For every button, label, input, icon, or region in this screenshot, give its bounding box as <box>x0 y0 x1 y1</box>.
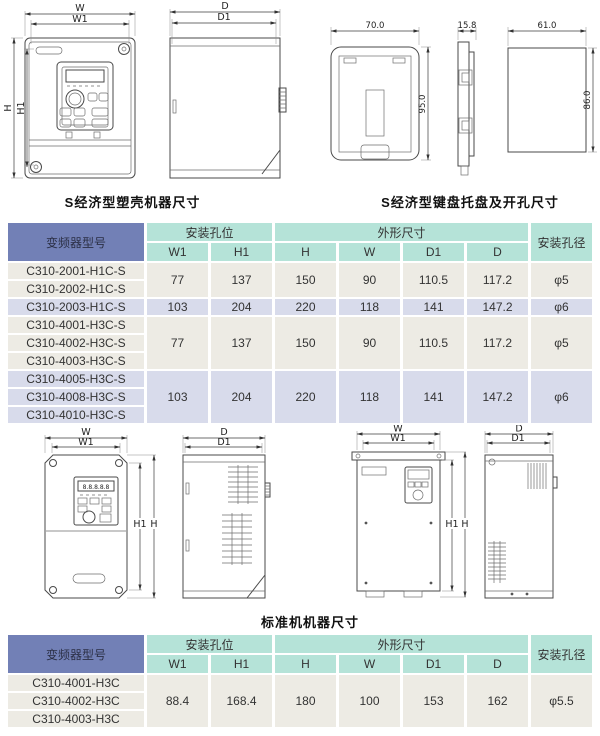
value-cell: 137 <box>211 317 272 369</box>
model-cell: C310-4008-H3C-S <box>8 389 144 405</box>
dim-label-h1: H1 <box>133 519 146 530</box>
dim-label-w1: W1 <box>390 433 405 444</box>
value-cell: 88.4 <box>147 675 208 727</box>
keypad-display: 8.8.8.8.8 <box>83 484 110 491</box>
dim-label-d1: D1 <box>511 433 524 444</box>
header-d: D <box>467 655 528 673</box>
header-h1: H1 <box>211 655 272 673</box>
value-cell: 147.2 <box>467 299 528 315</box>
front-view <box>25 38 135 178</box>
model-cell: C310-4003-H3C <box>8 711 144 727</box>
caption-s-economy-machine: S经济型塑壳机器尺寸 <box>20 192 245 211</box>
dimensions-table-s-economy: 变频器型号 安装孔位 外形尺寸 安装孔径 W1 H1 H W D1 D C310… <box>5 221 595 425</box>
model-cell: C310-4005-H3C-S <box>8 371 144 387</box>
caption-standard-machine: 标准机机器尺寸 <box>10 612 600 631</box>
std-side-view-large <box>485 455 557 598</box>
dim-label-w1: W1 <box>72 14 87 25</box>
value-cell: 180 <box>275 675 336 727</box>
model-cell: C310-2003-H1C-S <box>8 299 144 315</box>
value-cell: 204 <box>211 371 272 423</box>
value-cell: 77 <box>147 263 208 297</box>
dimension-lines-left: W W1 H1 H D D1 <box>45 427 265 598</box>
dim-label-d: D <box>221 1 228 12</box>
header-w1: W1 <box>147 243 208 261</box>
dim-hole-width: 61.0 <box>538 21 557 31</box>
header-h1: H1 <box>211 243 272 261</box>
header-model: 变频器型号 <box>8 635 144 673</box>
header-h: H <box>275 243 336 261</box>
value-cell: 141 <box>403 299 464 315</box>
cutout-view <box>508 48 586 152</box>
value-cell: φ6 <box>531 371 592 423</box>
header-w1: W1 <box>147 655 208 673</box>
model-cell: C310-4003-H3C-S <box>8 353 144 369</box>
header-hole-diameter: 安装孔径 <box>531 223 592 261</box>
dim-tray-depth: 15.8 <box>458 21 477 31</box>
value-cell: φ6 <box>531 299 592 315</box>
value-cell: 103 <box>147 371 208 423</box>
header-d1: D1 <box>403 243 464 261</box>
header-h: H <box>275 655 336 673</box>
dim-label-h: H <box>461 519 468 530</box>
datasheet-page: W W1 H H1 D D1 <box>0 0 600 736</box>
value-cell: 117.2 <box>467 263 528 297</box>
dim-label-h: H <box>3 104 14 111</box>
value-cell: 153 <box>403 675 464 727</box>
dim-tray-height: 95.0 <box>418 95 428 114</box>
value-cell: 147.2 <box>467 371 528 423</box>
value-cell: 77 <box>147 317 208 369</box>
value-cell: 150 <box>275 263 336 297</box>
dimension-lines: W W1 H H1 D D1 <box>3 1 280 178</box>
side-view <box>170 38 286 178</box>
dim-label-h1: H1 <box>445 519 458 530</box>
dim-tray-width: 70.0 <box>366 21 385 31</box>
drawing-s-economy-drive: W W1 H H1 D D1 <box>0 0 300 215</box>
value-cell: φ5 <box>531 263 592 297</box>
tray-side-view <box>458 42 474 175</box>
header-w: W <box>339 243 400 261</box>
model-cell: C310-2002-H1C-S <box>8 281 144 297</box>
keypad: 8.8.8.8.8 <box>74 477 118 525</box>
model-cell: C310-4001-H3C <box>8 675 144 691</box>
value-cell: 141 <box>403 371 464 423</box>
dimension-lines-right: W W1 H1 H D D1 <box>357 425 553 597</box>
header-hole-diameter: 安装孔径 <box>531 635 592 673</box>
value-cell: 220 <box>275 371 336 423</box>
tray-front-view <box>331 47 419 160</box>
caption-keypad-tray: S经济型键盘托盘及开孔尺寸 <box>345 192 595 211</box>
drawing-standard-machines: 8.8.8.8.8 <box>0 425 600 615</box>
header-outline-group: 外形尺寸 <box>275 635 528 653</box>
header-mount-group: 安装孔位 <box>147 223 272 241</box>
drawing-keypad-tray: 70.0 95.0 15.8 61.0 86.0 <box>300 0 600 215</box>
model-cell: C310-4002-H3C-S <box>8 335 144 351</box>
model-cell: C310-4001-H3C-S <box>8 317 144 333</box>
dim-label-h1: H1 <box>16 101 27 114</box>
keypad <box>57 62 113 130</box>
header-w: W <box>339 655 400 673</box>
model-cell: C310-4002-H3C <box>8 693 144 709</box>
value-cell: 204 <box>211 299 272 315</box>
value-cell: 150 <box>275 317 336 369</box>
header-mount-group: 安装孔位 <box>147 635 272 653</box>
keypad <box>405 467 432 503</box>
dim-label-d1: D1 <box>217 12 230 23</box>
value-cell: 90 <box>339 263 400 297</box>
model-cell: C310-2001-H1C-S <box>8 263 144 279</box>
dim-label-h: H <box>150 519 157 530</box>
std-front-view-small: 8.8.8.8.8 <box>45 455 127 598</box>
value-cell: 110.5 <box>403 263 464 297</box>
dim-label-w1: W1 <box>78 437 93 448</box>
value-cell: 137 <box>211 263 272 297</box>
dim-label-d1: D1 <box>217 437 230 448</box>
header-outline-group: 外形尺寸 <box>275 223 528 241</box>
std-side-view-small <box>183 455 270 598</box>
value-cell: 103 <box>147 299 208 315</box>
value-cell: 118 <box>339 371 400 423</box>
dimensions-table-standard: 变频器型号 安装孔位 外形尺寸 安装孔径 W1 H1 H W D1 D C310… <box>5 633 595 729</box>
header-d: D <box>467 243 528 261</box>
value-cell: φ5 <box>531 317 592 369</box>
dim-label-w: W <box>75 3 85 14</box>
value-cell: 220 <box>275 299 336 315</box>
model-cell: C310-4010-H3C-S <box>8 407 144 423</box>
dim-hole-height: 86.0 <box>583 91 593 110</box>
std-front-view-large <box>352 452 445 597</box>
value-cell: φ5.5 <box>531 675 592 727</box>
header-model: 变频器型号 <box>8 223 144 261</box>
header-d1: D1 <box>403 655 464 673</box>
value-cell: 117.2 <box>467 317 528 369</box>
value-cell: 118 <box>339 299 400 315</box>
value-cell: 110.5 <box>403 317 464 369</box>
value-cell: 90 <box>339 317 400 369</box>
value-cell: 100 <box>339 675 400 727</box>
value-cell: 162 <box>467 675 528 727</box>
value-cell: 168.4 <box>211 675 272 727</box>
